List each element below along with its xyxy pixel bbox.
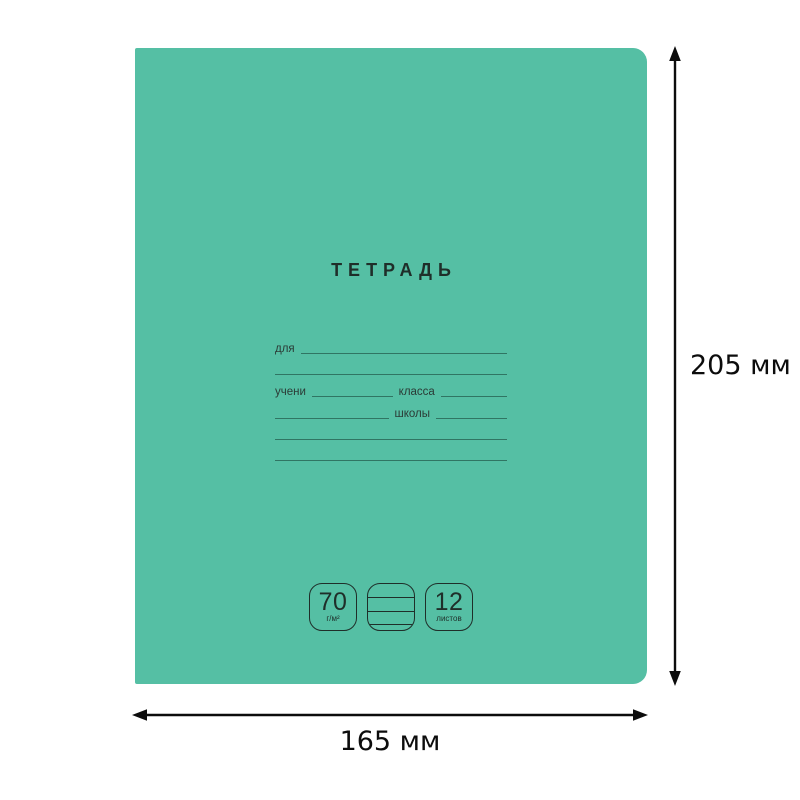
- arrowhead-up-icon: [669, 46, 681, 61]
- sheet-count-badge: 12 листов: [425, 583, 473, 631]
- blank-line: [436, 418, 507, 419]
- arrowhead-right-icon: [633, 709, 648, 721]
- owner-line-label: для: [275, 344, 295, 356]
- blank-line: [275, 460, 507, 461]
- blank-line-row: [275, 445, 507, 462]
- width-dimension-label: 165 мм: [0, 726, 780, 757]
- blank-line: [301, 353, 507, 354]
- blank-line-row: [275, 424, 507, 441]
- sheet-count-value: 12: [435, 591, 464, 615]
- blank-line: [275, 374, 507, 375]
- ruled-line: [368, 624, 414, 625]
- paper-weight-badge: 70 г/м²: [309, 583, 357, 631]
- paper-weight-unit: г/м²: [326, 615, 339, 623]
- blank-line: [275, 418, 389, 419]
- paper-weight-value: 70: [319, 591, 348, 615]
- class-label: класса: [399, 387, 435, 399]
- blank-line: [441, 396, 507, 397]
- blank-line: [275, 439, 507, 440]
- sheet-count-unit: листов: [436, 615, 461, 623]
- blank-line: [312, 396, 393, 397]
- height-dimension-label: 205 мм: [690, 350, 791, 381]
- school-row: школы: [275, 403, 507, 420]
- lined-pages-icon: [367, 583, 415, 631]
- arrowhead-down-icon: [669, 671, 681, 686]
- blank-line-row: [275, 359, 507, 376]
- width-dimension-arrow: [132, 704, 648, 726]
- student-class-row: учени класса: [275, 381, 507, 398]
- owner-line-row: для: [275, 338, 507, 355]
- notebook-cover: ТЕТРАДЬ для учени класса школы: [135, 48, 647, 684]
- ruled-line: [368, 597, 414, 598]
- school-label: школы: [395, 409, 431, 421]
- height-dimension-arrow: [664, 46, 686, 686]
- product-dimension-diagram: ТЕТРАДЬ для учени класса школы: [0, 0, 800, 800]
- student-label: учени: [275, 387, 306, 399]
- cover-title: ТЕТРАДЬ: [135, 260, 647, 281]
- cover-badges: 70 г/м² 12 листов: [135, 583, 647, 631]
- arrowhead-left-icon: [132, 709, 147, 721]
- ruled-line: [368, 611, 414, 612]
